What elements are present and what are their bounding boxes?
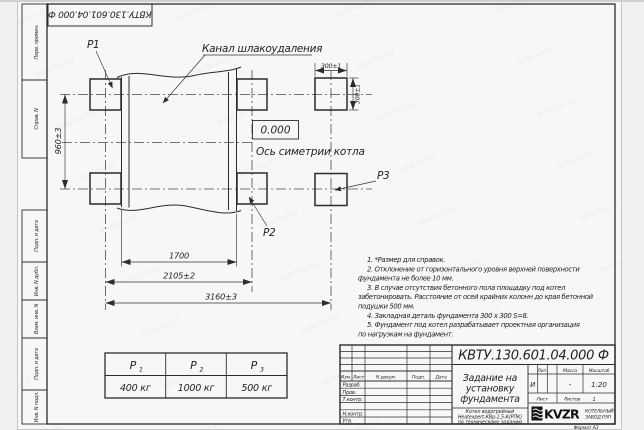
kvzr-logo-text: KVZR (544, 407, 580, 422)
note-line-3: фундамента не более 10 мм. (358, 275, 453, 283)
margin-label-vzam-inv-n: Взам. инв. N (34, 304, 40, 335)
dim-300-right: 300±1 (355, 84, 362, 104)
margin-label-inv-n-dubl: Инв. N дубл. (34, 266, 40, 296)
tb-col-data: Дата (434, 374, 447, 380)
dim-3160: 3160±3 (205, 292, 237, 302)
tb-masshtab-value: 1:20 (591, 381, 607, 389)
note-line-8: 5. Фундамент под котел разрабатывает про… (367, 321, 580, 329)
loads-col3-symbol: P (251, 359, 258, 372)
dim-960: 960±3 (53, 128, 63, 155)
tb-subtitle-line3: по техническому заданию (458, 420, 522, 425)
tb-doc-number: КВТУ.130.601.04.000 Ф (458, 349, 609, 364)
tb-masshtab-header: Масштаб (589, 368, 610, 374)
loads-col2-value: 1000 кг (178, 383, 216, 394)
loads-col3-sub: 3 (260, 367, 264, 374)
p1-label: P1 (87, 39, 99, 51)
kvzr-caption-2: ЗАВОД РЭП (585, 415, 612, 421)
tb-listov-value: 1 (593, 397, 596, 403)
margin-label-podp-data-upper: Подп. и дата (34, 220, 40, 252)
axis-label: Ось симетрии котла (256, 146, 365, 158)
note-line-1: 1. *Размер для справок. (367, 256, 445, 264)
tb-row-prov: Пров. (343, 390, 357, 396)
note-line-5: забетонировать. Расстояние от осей крайн… (358, 293, 594, 301)
tb-row-utv: Утв. (343, 419, 353, 425)
tb-listov-label: Листов (563, 397, 581, 403)
dim-2105: 2105±2 (163, 271, 195, 281)
tb-subtitle-line1: Котел водогрейный (466, 409, 515, 415)
note-line-2: 2. Отклонение от горизонтального уровня … (367, 265, 580, 273)
note-line-9: по нагрузкам на фундамент. (358, 330, 453, 338)
tb-lit-header: Лит. (537, 368, 548, 374)
kvzr-caption-1: КОТЕЛЬНЫЙ (585, 408, 614, 415)
channel-label: Канал шлакоудаления (202, 43, 322, 55)
tb-col-podp: Подп. (412, 374, 425, 380)
loads-col3-value: 500 кг (241, 383, 273, 394)
tb-title-line2: установку (465, 384, 515, 395)
tb-row-t-kontr: Т.контр. (343, 397, 363, 403)
loads-col1-symbol: P (130, 359, 137, 372)
note-line-6: подушки 500 мм. (358, 303, 415, 311)
tb-list-label: Лист (535, 397, 548, 403)
tb-col-list: Лист (352, 374, 365, 380)
note-line-4: 3. В случае отсутствия бетонного пола пл… (367, 284, 566, 292)
margin-label-perv-primen: Перв. примен. (34, 25, 40, 60)
tb-row-razrab: Разраб. (343, 383, 361, 389)
format-label: Формат А3 (574, 425, 599, 430)
margin-label-sprav-n: Справ. N (34, 108, 40, 130)
margin-label-inv-n-podl: Инв. N подл. (34, 392, 40, 423)
kvzr-logo: KVZR КОТЕЛЬНЫЙ ЗАВОД РЭП (532, 407, 615, 422)
drawing-sheet: kotel-kvr.kz Перв. примен. Справ. N Подп… (0, 0, 644, 430)
tb-col-n-dokum: N докум. (376, 374, 396, 380)
tb-col-izm: Изм. (341, 374, 351, 380)
note-line-7: 4. Закладная деталь фундамента 300 х 300… (367, 312, 528, 320)
loads-col2-sub: 2 (200, 367, 204, 374)
watermark-overlay (18, 1, 622, 430)
corner-stamp-number: КВТУ.130.601.04.000 Ф (48, 8, 152, 18)
foundation-drawing-svg: kotel-kvr.kz Перв. примен. Справ. N Подп… (0, 0, 644, 430)
tb-massa-header: Масса (563, 368, 577, 374)
tb-title-line3: фундамента (460, 394, 520, 405)
margin-label-podp-data-lower: Подп. и дата (34, 348, 40, 380)
loads-col2-symbol: P (190, 359, 197, 372)
loads-col1-value: 400 кг (120, 383, 152, 394)
elevation-value: 0.000 (260, 125, 290, 137)
tb-row-n-kontr: Н.контр. (343, 411, 364, 417)
notes: 1. *Размер для справок. 2. Отклонение от… (358, 256, 594, 338)
tb-lit-value: И (530, 381, 536, 389)
tb-title-line1: Задание на (463, 373, 518, 384)
p3-label: P3 (377, 170, 389, 182)
dim-1700: 1700 (169, 251, 189, 261)
loads-col1-sub: 1 (139, 367, 143, 374)
dim-300-top: 300±1 (321, 63, 341, 70)
p2-label: P2 (263, 227, 276, 239)
